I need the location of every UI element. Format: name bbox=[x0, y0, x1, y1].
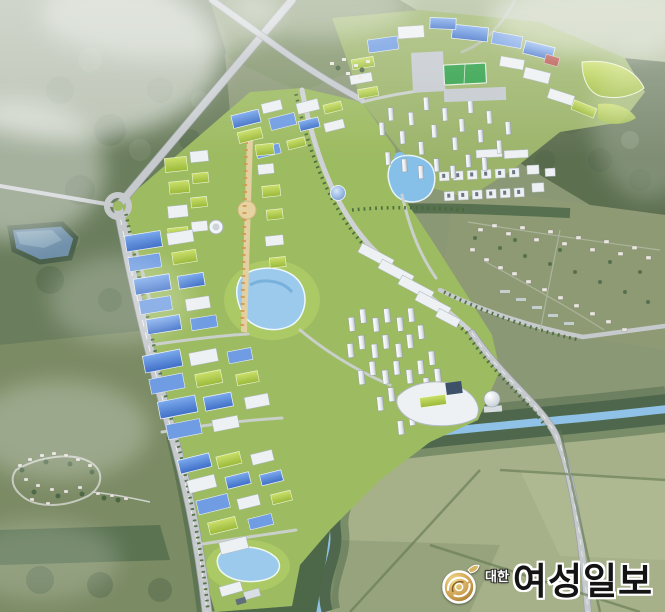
publisher-name: 여성일보 bbox=[513, 563, 653, 600]
campus-pond bbox=[388, 155, 435, 202]
rendered-landscape: .B{fill:url(#bluR);stroke:#eef3fb;stroke… bbox=[0, 0, 665, 612]
glass-building bbox=[445, 381, 463, 395]
dome-building bbox=[484, 391, 500, 407]
blue-dome-tank bbox=[331, 186, 346, 201]
gold-swirl-emblem-icon bbox=[440, 561, 482, 607]
publisher-prefix: 대한 bbox=[485, 566, 509, 585]
publisher-watermark: 대한 여성일보 bbox=[440, 561, 653, 607]
aerial-masterplan-rendering: .B{fill:url(#bluR);stroke:#eef3fb;stroke… bbox=[0, 0, 665, 612]
